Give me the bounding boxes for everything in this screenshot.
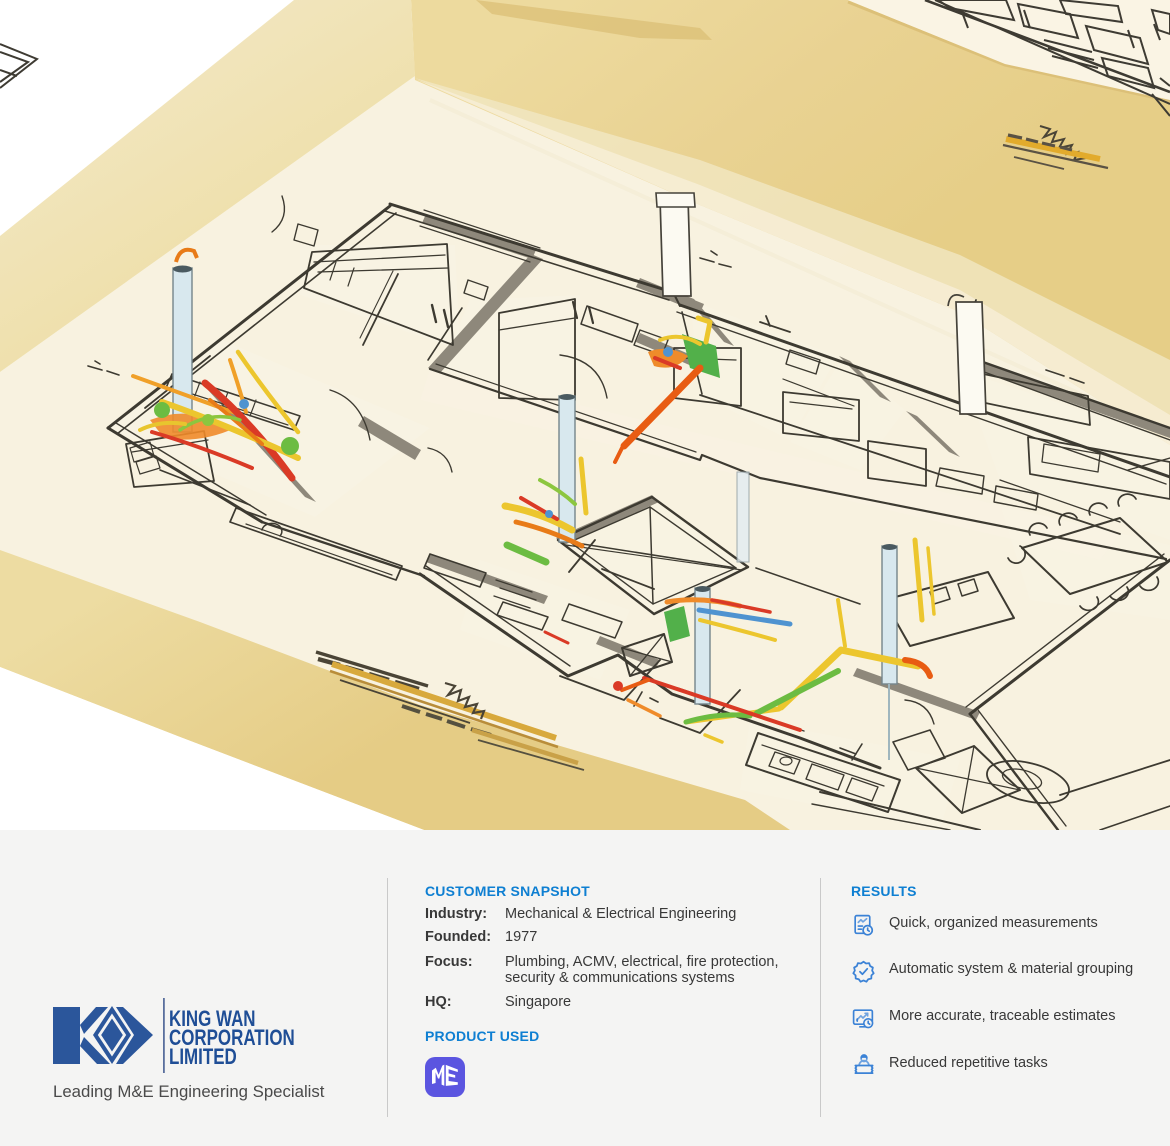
svg-text:Leading M&E Engineering Specia: Leading M&E Engineering Specialist [53,1082,325,1101]
svg-text:LIMITED: LIMITED [169,1045,237,1070]
